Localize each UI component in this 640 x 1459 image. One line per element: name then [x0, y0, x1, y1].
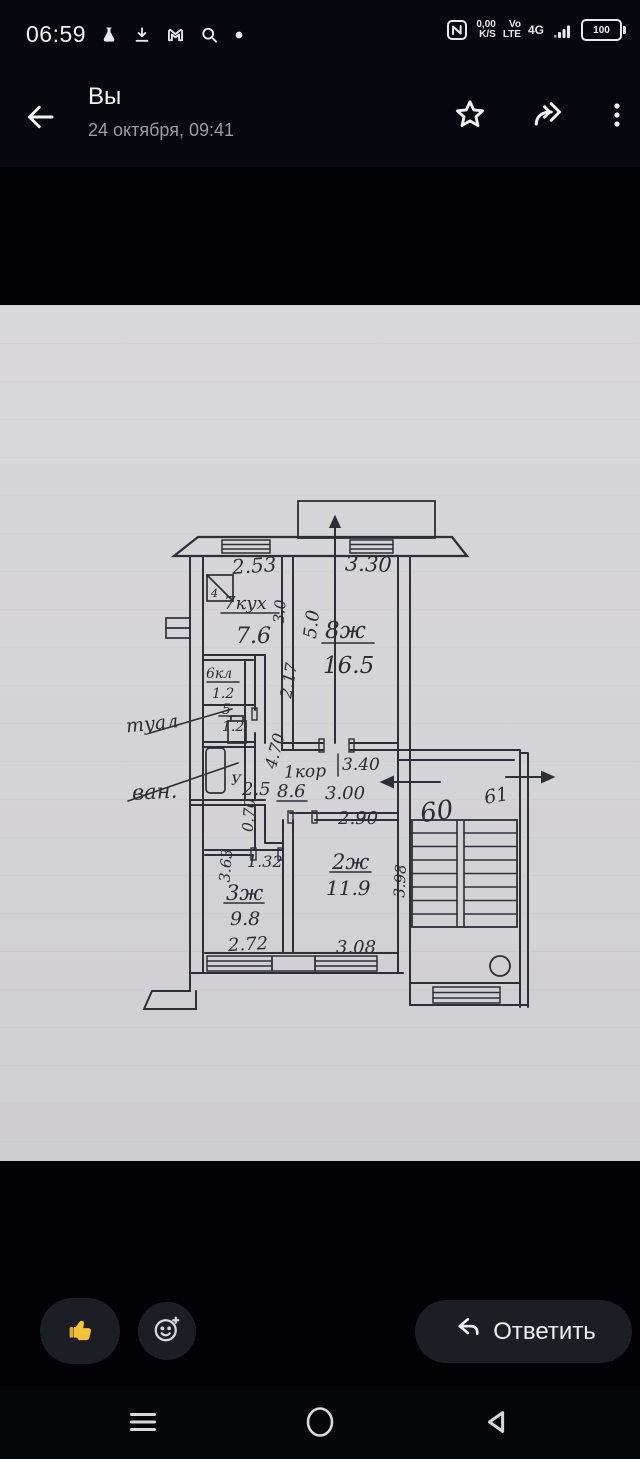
status-bar: 06:59 0,00 K/S	[0, 0, 640, 75]
dim-hall-upper: 2.17	[276, 661, 301, 701]
bathtub-icon	[206, 748, 225, 793]
sender-name: Вы	[88, 83, 234, 111]
search-icon	[199, 24, 220, 46]
label-toilet: 5	[222, 702, 231, 718]
nfc-icon	[445, 18, 469, 42]
clock: 06:59	[26, 21, 86, 48]
emoji-add-icon	[152, 1314, 182, 1349]
label-room8: 8ж	[325, 618, 366, 644]
area-toilet: 1.2	[222, 719, 244, 735]
network-type: 4G	[528, 23, 544, 37]
nav-menu-button[interactable]	[128, 1409, 158, 1440]
flask-icon	[99, 24, 119, 46]
label-kitchen: 7кух	[224, 593, 267, 614]
dim-room2-width: 3.08	[336, 937, 376, 958]
dim-door: 1.32	[247, 852, 283, 871]
area-room3: 9.8	[230, 908, 260, 930]
reply-button[interactable]: Ответить	[415, 1300, 632, 1363]
dim-room8-side: 5.0	[300, 609, 324, 640]
phone-screen: 06:59 0,00 K/S	[0, 0, 640, 1459]
apartment-number-61: 61	[482, 783, 510, 809]
label-corridor: 1кор	[284, 761, 327, 782]
toilet-icon	[228, 716, 246, 743]
callout-toilet: туал	[125, 710, 179, 737]
area-room2: 11.9	[326, 876, 371, 900]
area-kitchen: 7.6	[236, 624, 271, 649]
back-button[interactable]	[22, 99, 58, 140]
label-bath: У	[231, 773, 242, 789]
dim-room2-height: 3.98	[390, 864, 410, 898]
reply-arrow-icon	[451, 1313, 481, 1350]
net-speed: 0,00 K/S	[476, 20, 495, 40]
dim-room2-top: 2.90	[337, 808, 378, 829]
stove-icon	[207, 575, 233, 601]
forward-button[interactable]	[530, 97, 568, 138]
dim-corridor2: 3.00	[325, 783, 365, 804]
dim-balcony: 3.30	[345, 551, 393, 577]
thumbs-up-reaction-button[interactable]	[40, 1298, 120, 1364]
thumbs-up-icon	[64, 1313, 96, 1350]
reply-label: Ответить	[493, 1318, 596, 1346]
floor-plan-walls	[128, 501, 553, 1009]
android-nav-bar	[0, 1390, 640, 1459]
notification-dot-icon	[233, 24, 245, 46]
signal-bars-icon	[552, 20, 574, 40]
nav-back-button[interactable]	[482, 1407, 512, 1442]
battery-icon: 100	[581, 19, 626, 41]
stove-mark: 4	[210, 587, 218, 600]
dim-hall-mid: 4.70	[261, 731, 289, 771]
dim-kitchen-top: 2.53	[230, 552, 277, 579]
photo-floor-plan[interactable]: 2.53 3.30 7кух 7.6 3.0 5.0 8ж 16.5 2.17 …	[0, 305, 640, 1161]
gmail-icon	[165, 24, 186, 46]
label-closet: 6кл	[206, 666, 232, 682]
dim-room3-height: 3.63	[216, 848, 237, 883]
callout-bath: ван.	[131, 779, 177, 805]
area-bath: 2.5	[241, 779, 271, 800]
dim-corridor1: 3.40	[342, 755, 380, 775]
message-header: Вы 24 октября, 09:41	[0, 75, 640, 167]
more-menu-button[interactable]	[610, 97, 624, 138]
favorite-star-button[interactable]	[452, 97, 488, 138]
label-room3: 3ж	[226, 881, 263, 905]
dim-kitchen-side: 3.0	[270, 598, 290, 624]
nav-home-button[interactable]	[303, 1405, 337, 1444]
area-room8: 16.5	[323, 653, 374, 679]
floor-plan-labels: 2.53 3.30 7кух 7.6 3.0 5.0 8ж 16.5 2.17 …	[125, 551, 510, 958]
sink-icon	[166, 618, 190, 638]
message-timestamp: 24 октября, 09:41	[88, 120, 234, 141]
area-closet: 1.2	[212, 686, 234, 702]
apartment-number-60: 60	[418, 795, 455, 829]
dim-room3-width: 2.72	[226, 933, 268, 956]
floor-plan-drawing: 2.53 3.30 7кух 7.6 3.0 5.0 8ж 16.5 2.17 …	[0, 305, 640, 1161]
volte-indicator: Vo LTE	[503, 20, 521, 40]
download-icon	[132, 24, 152, 46]
label-room2: 2ж	[331, 850, 369, 874]
dim-shaft: 0.70	[239, 797, 260, 832]
area-corridor: 8.6	[277, 781, 306, 802]
add-reaction-button[interactable]	[138, 1302, 196, 1360]
